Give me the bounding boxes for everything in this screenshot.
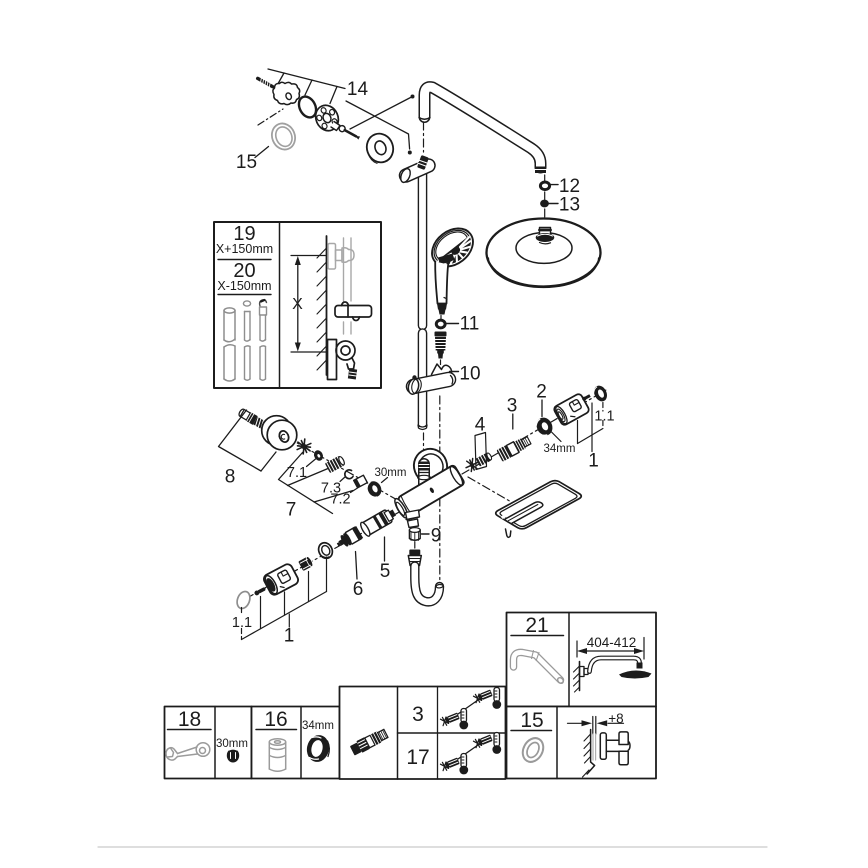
svg-text:18: 18 bbox=[178, 708, 201, 731]
svg-text:10: 10 bbox=[459, 364, 480, 385]
svg-text:8: 8 bbox=[225, 467, 236, 488]
svg-text:15: 15 bbox=[520, 709, 543, 732]
svg-text:21: 21 bbox=[525, 614, 548, 637]
svg-text:17: 17 bbox=[406, 746, 429, 769]
svg-text:X-150mm: X-150mm bbox=[217, 279, 271, 293]
svg-text:34mm: 34mm bbox=[544, 443, 576, 455]
svg-text:11: 11 bbox=[460, 314, 480, 335]
svg-text:404-412: 404-412 bbox=[587, 635, 637, 650]
svg-text:9: 9 bbox=[431, 526, 442, 547]
svg-text:X: X bbox=[292, 296, 303, 313]
svg-text:13: 13 bbox=[559, 195, 580, 216]
svg-text:30mm: 30mm bbox=[375, 467, 407, 479]
svg-text:3: 3 bbox=[507, 396, 518, 417]
svg-text:1.1: 1.1 bbox=[594, 409, 614, 425]
svg-text:34mm: 34mm bbox=[302, 720, 334, 732]
svg-text:5: 5 bbox=[380, 561, 391, 582]
svg-text:30mm: 30mm bbox=[216, 738, 248, 750]
svg-text:1: 1 bbox=[588, 451, 599, 472]
svg-text:1: 1 bbox=[284, 626, 295, 647]
svg-text:14: 14 bbox=[347, 79, 369, 100]
svg-text:7: 7 bbox=[286, 500, 297, 521]
svg-text:15: 15 bbox=[236, 152, 257, 173]
svg-text:3: 3 bbox=[412, 703, 424, 726]
svg-text:16: 16 bbox=[264, 708, 287, 731]
svg-text:1.1: 1.1 bbox=[232, 615, 252, 631]
svg-text:2: 2 bbox=[536, 382, 547, 403]
svg-text:X+150mm: X+150mm bbox=[216, 242, 273, 256]
svg-text:6: 6 bbox=[353, 579, 364, 600]
